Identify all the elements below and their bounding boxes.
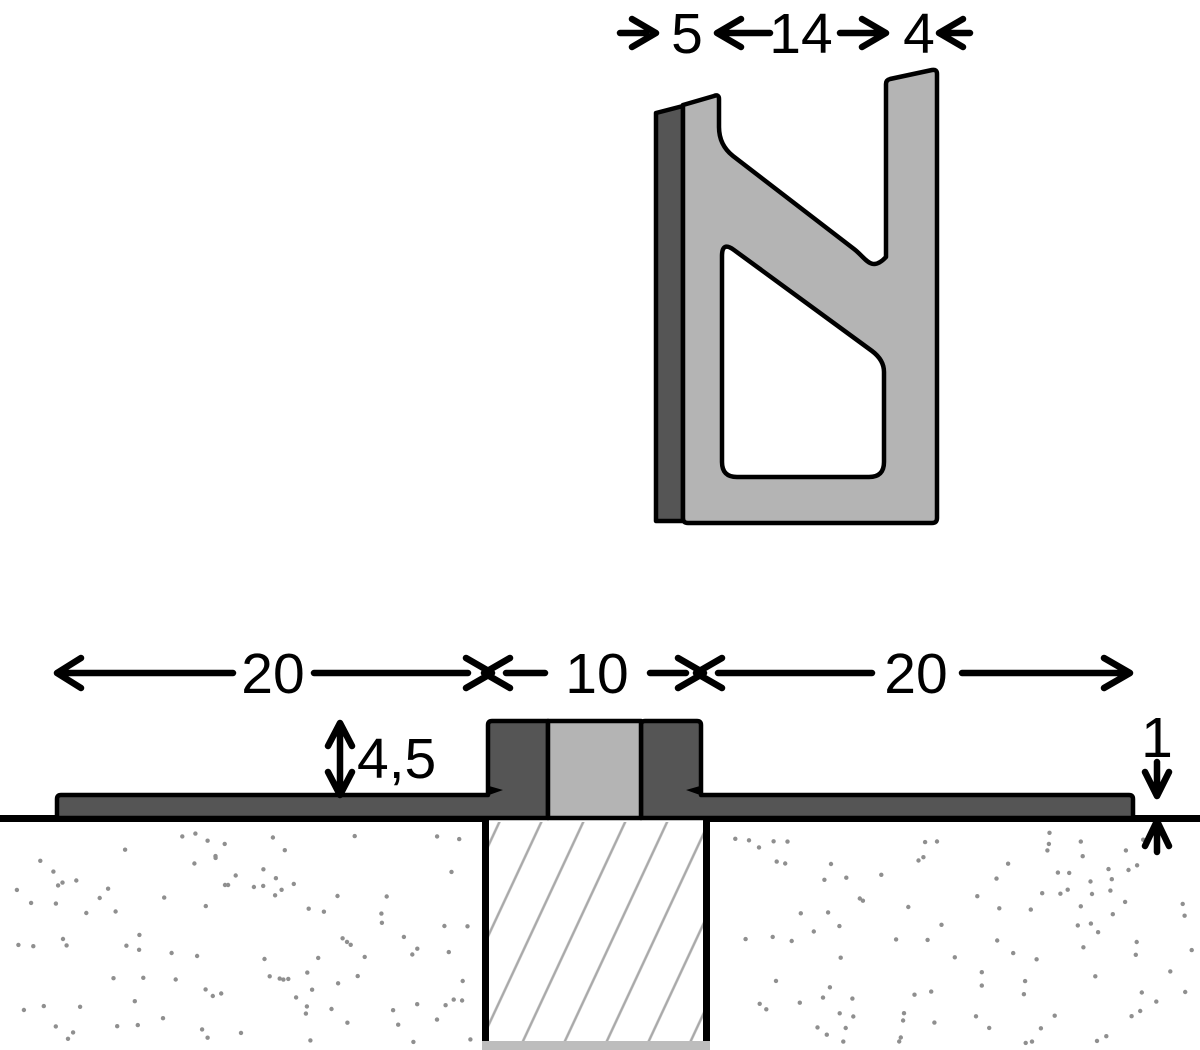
stipple-dot xyxy=(278,976,282,980)
stipple-dot xyxy=(38,859,42,863)
stipple-dot xyxy=(283,848,287,852)
dim-junction-cross-icon xyxy=(650,658,872,688)
dim-arrow-right-icon xyxy=(620,19,656,47)
stipple-dot xyxy=(1111,912,1115,916)
stipple-dot xyxy=(363,955,367,959)
stipple-dot xyxy=(137,948,141,952)
stipple-dot xyxy=(106,887,110,891)
stipple-dot xyxy=(980,970,984,974)
stipple-dot xyxy=(975,894,979,898)
stipple-dot xyxy=(141,976,145,980)
stipple-dot xyxy=(821,995,825,999)
stipple-dot xyxy=(841,1039,845,1043)
stipple-dot xyxy=(851,1014,855,1018)
top-dimension-chain: 5 14 4 xyxy=(620,2,970,66)
technical-drawing-page: 5 14 4 20 10 20 4,5 xyxy=(0,0,1200,1050)
joint-filler-bottom-strip xyxy=(482,1041,710,1050)
dim-label-joint-width: 10 xyxy=(565,642,628,706)
stipple-dot xyxy=(925,938,929,942)
stipple-dot xyxy=(1138,1009,1142,1013)
joint-filler-hatch xyxy=(489,822,703,1042)
stipple-dot xyxy=(1067,871,1071,875)
stipple-dot xyxy=(213,856,217,860)
dim-label-left-width: 5 xyxy=(671,2,703,66)
stipple-dot xyxy=(136,1023,140,1027)
stipple-dot xyxy=(356,974,360,978)
stipple-dot xyxy=(747,838,751,842)
stipple-dot xyxy=(1040,891,1044,895)
stipple-dot xyxy=(995,938,999,942)
stipple-dot xyxy=(929,989,933,993)
joint-gap-wall-right xyxy=(703,818,710,1045)
stipple-dot xyxy=(460,998,464,1002)
stipple-dot xyxy=(391,1008,395,1012)
stipple-dot xyxy=(1123,900,1127,904)
stipple-dot xyxy=(758,1002,762,1006)
stipple-dot xyxy=(137,933,141,937)
dim-arrow-left-icon xyxy=(717,19,770,47)
stipple-dot xyxy=(897,1039,901,1043)
stipple-dot xyxy=(205,839,209,843)
stipple-dot xyxy=(1154,999,1158,1003)
stipple-dot xyxy=(733,837,737,841)
stipple-dot xyxy=(1029,907,1033,911)
stipple-dot xyxy=(336,981,340,985)
profile-body xyxy=(683,70,937,523)
stipple-dot xyxy=(396,1022,400,1026)
stipple-dot xyxy=(994,876,998,880)
stipple-dot xyxy=(974,1014,978,1018)
stipple-dot xyxy=(771,935,775,939)
stipple-dot xyxy=(465,924,469,928)
stipple-dot xyxy=(1135,863,1139,867)
stipple-dot xyxy=(252,885,256,889)
stipple-dot xyxy=(980,983,984,987)
stipple-dot xyxy=(1110,877,1114,881)
dim-label-left-flange: 20 xyxy=(241,642,304,706)
stipple-dot xyxy=(916,858,920,862)
stipple-dot xyxy=(123,848,127,852)
stipple-dot xyxy=(839,956,843,960)
stipple-dot xyxy=(54,1024,58,1028)
profile-dark-insert-strip xyxy=(656,106,683,521)
stipple-dot xyxy=(1022,992,1026,996)
stipple-dot xyxy=(457,837,461,841)
stipple-dot xyxy=(1079,904,1083,908)
stipple-dot xyxy=(798,1001,802,1005)
stipple-dot xyxy=(1066,888,1070,892)
stipple-dot xyxy=(1124,848,1128,852)
stipple-dot xyxy=(837,924,841,928)
stipple-dot xyxy=(1079,839,1083,843)
stipple-dot xyxy=(402,935,406,939)
stipple-dot xyxy=(1106,867,1110,871)
stipple-dot xyxy=(262,957,266,961)
stipple-dot xyxy=(1045,848,1049,852)
stipple-dot xyxy=(234,873,238,877)
stipple-dot xyxy=(1190,948,1194,952)
stipple-dot xyxy=(345,1021,349,1025)
dim-vertical-double-arrow-icon xyxy=(328,723,352,795)
stipple-dot xyxy=(411,1040,415,1044)
stipple-dot xyxy=(219,991,223,995)
stipple-dot xyxy=(1134,953,1138,957)
stipple-dot xyxy=(203,987,207,991)
stipple-dot xyxy=(1181,902,1185,906)
stipple-dot xyxy=(29,901,33,905)
stipple-dot xyxy=(1053,1014,1057,1018)
stipple-dot xyxy=(1129,1014,1133,1018)
installed-section xyxy=(0,721,1200,1050)
dim-label-right-flange: 20 xyxy=(884,642,947,706)
stipple-dot xyxy=(468,1037,472,1041)
stipple-dot xyxy=(461,979,465,983)
stipple-dot xyxy=(1058,892,1062,896)
stipple-dot xyxy=(180,834,184,838)
stipple-dot xyxy=(442,924,446,928)
stipple-dot xyxy=(923,840,927,844)
stipple-dot xyxy=(1089,921,1093,925)
stipple-dot xyxy=(1135,940,1139,944)
stipple-dot xyxy=(443,1003,447,1007)
stipple-dot xyxy=(195,954,199,958)
profile-left-leg-and-flange xyxy=(57,721,548,818)
stipple-dot xyxy=(307,907,311,911)
stipple-dot xyxy=(822,878,826,882)
stipple-dot xyxy=(1095,1039,1099,1043)
stipple-dot xyxy=(205,1036,209,1040)
stipple-dot xyxy=(764,1007,768,1011)
stipple-dot xyxy=(1039,1026,1043,1030)
stipple-dot xyxy=(828,985,832,989)
stipple-dot xyxy=(939,923,943,927)
profile-cross-section xyxy=(656,70,937,523)
stipple-dot xyxy=(349,943,353,947)
stipple-dot xyxy=(1126,868,1130,872)
stipple-dot xyxy=(345,940,349,944)
stipple-dot xyxy=(74,878,78,882)
stipple-dot xyxy=(902,1011,906,1015)
stipple-dot xyxy=(380,921,384,925)
stipple-dot xyxy=(1168,969,1172,973)
stipple-dot xyxy=(452,997,456,1001)
stipple-dot xyxy=(1096,930,1100,934)
stipple-dot xyxy=(316,956,320,960)
stipple-dot xyxy=(78,1005,82,1009)
stipple-dot xyxy=(223,883,227,887)
thickness-dimension: 1 xyxy=(1141,706,1173,852)
stipple-dot xyxy=(274,876,278,880)
stipple-dot xyxy=(1183,990,1187,994)
stipple-dot xyxy=(812,929,816,933)
stipple-dot xyxy=(743,937,747,941)
stipple-dot xyxy=(775,859,779,863)
stipple-dot xyxy=(353,834,357,838)
stipple-dot xyxy=(61,937,65,941)
stipple-dot xyxy=(133,999,137,1003)
stipple-dot xyxy=(435,834,439,838)
stipple-dot xyxy=(894,937,898,941)
stipple-dot xyxy=(1081,854,1085,858)
stipple-dot xyxy=(42,1004,46,1008)
dim-arrow-up-icon xyxy=(1145,821,1169,852)
stipple-dot xyxy=(799,911,803,915)
stipple-dot xyxy=(1056,870,1060,874)
stipple-dot xyxy=(15,888,19,892)
stipple-dot xyxy=(785,839,789,843)
stipple-dot xyxy=(211,994,215,998)
stipple-dot xyxy=(98,896,102,900)
stipple-dot xyxy=(1047,831,1051,835)
stipple-dot xyxy=(829,862,833,866)
stipple-dot xyxy=(261,867,265,871)
stipple-dot xyxy=(410,952,414,956)
stipple-dot xyxy=(1090,892,1094,896)
stipple-dot xyxy=(54,901,58,905)
stipple-dot xyxy=(997,906,1001,910)
stipple-dot xyxy=(825,1033,829,1037)
stipple-dot xyxy=(51,869,55,873)
stipple-dot xyxy=(844,876,848,880)
stipple-dot xyxy=(261,884,265,888)
stipple-dot xyxy=(1034,957,1038,961)
stipple-dot xyxy=(815,1025,819,1029)
stipple-dot xyxy=(783,861,787,865)
stipple-dot xyxy=(771,839,775,843)
stipple-dot xyxy=(200,1027,204,1031)
stipple-dot xyxy=(286,977,290,981)
stipple-dot xyxy=(826,910,830,914)
joint-gap-wall-left xyxy=(482,818,489,1045)
stipple-dot xyxy=(22,1008,26,1012)
stipple-dot xyxy=(858,896,862,900)
stipple-dot xyxy=(1011,951,1015,955)
stipple-dot xyxy=(987,1026,991,1030)
dim-arrow-right-icon xyxy=(840,19,886,47)
stipple-dot xyxy=(308,1038,312,1042)
stipple-dot xyxy=(1081,945,1085,949)
stipple-dot xyxy=(294,995,298,999)
stipple-dot xyxy=(60,880,64,884)
stipple-dot xyxy=(1093,974,1097,978)
stipple-dot xyxy=(304,1011,308,1015)
stipple-dot xyxy=(223,842,227,846)
stipple-dot xyxy=(838,1011,842,1015)
stipple-dot xyxy=(844,1026,848,1030)
stipple-dot xyxy=(1182,914,1186,918)
stipple-dot xyxy=(281,977,285,981)
dim-junction-cross-icon xyxy=(314,658,545,688)
stipple-dot xyxy=(879,873,883,877)
stipple-dot xyxy=(901,1018,905,1022)
stipple-dot xyxy=(935,839,939,843)
stipple-dot xyxy=(84,911,88,915)
stipple-dot xyxy=(174,977,178,981)
stipple-dot xyxy=(790,939,794,943)
stipple-dot xyxy=(66,1037,70,1041)
stipple-dot xyxy=(1030,1039,1034,1043)
dim-arrow-left-icon xyxy=(57,658,233,688)
stipple-dot xyxy=(31,944,35,948)
stipple-dot xyxy=(310,988,314,992)
stipple-dot xyxy=(1104,1034,1108,1038)
profile-right-leg-and-flange xyxy=(641,721,1133,818)
dim-label-middle-width: 14 xyxy=(769,2,832,66)
stipple-dot xyxy=(162,895,166,899)
stipple-dot xyxy=(1006,862,1010,866)
stipple-dot xyxy=(322,910,326,914)
stipple-dot xyxy=(757,845,761,849)
stipple-dot xyxy=(204,904,208,908)
stipple-dot xyxy=(415,947,419,951)
height-dimension: 4,5 xyxy=(328,723,436,795)
stipple-dot xyxy=(435,1017,439,1021)
stipple-dot xyxy=(1088,879,1092,883)
stipple-dot xyxy=(113,909,117,913)
stipple-dot xyxy=(56,883,60,887)
stipple-dot xyxy=(239,1031,243,1035)
stipple-dot xyxy=(912,993,916,997)
stipple-dot xyxy=(335,894,339,898)
stipple-dot xyxy=(16,943,20,947)
stipple-dot xyxy=(1076,923,1080,927)
stipple-dot xyxy=(305,1004,309,1008)
stipple-dot xyxy=(899,1035,903,1039)
stipple-dot xyxy=(953,955,957,959)
stipple-dot xyxy=(415,1002,419,1006)
stipple-dot xyxy=(1140,990,1144,994)
joint-profile-diagram: 5 14 4 20 10 20 4,5 xyxy=(0,0,1200,1050)
stipple-dot xyxy=(161,1016,165,1020)
joint-insert-center-block xyxy=(548,721,641,818)
stipple-dot xyxy=(71,1030,75,1034)
stipple-dot xyxy=(921,855,925,859)
dim-arrow-left-icon xyxy=(939,19,970,47)
stipple-dot xyxy=(124,944,128,948)
stipple-dot xyxy=(385,894,389,898)
bottom-dimension-chain: 20 10 20 xyxy=(57,642,1130,706)
stipple-dot xyxy=(268,974,272,978)
stipple-dot xyxy=(340,936,344,940)
stipple-dot xyxy=(1108,888,1112,892)
stipple-dot xyxy=(273,893,277,897)
stipple-dot xyxy=(292,882,296,886)
stipple-dot xyxy=(1023,1041,1027,1045)
dim-label-right-width: 4 xyxy=(903,2,935,66)
stipple-dot xyxy=(449,870,453,874)
stipple-dot xyxy=(192,861,196,865)
stipple-dot xyxy=(379,911,383,915)
stipple-dot xyxy=(115,1024,119,1028)
stipple-dot xyxy=(64,943,68,947)
stipple-dot xyxy=(329,1007,333,1011)
stipple-dot xyxy=(1047,842,1051,846)
stipple-dot xyxy=(932,1020,936,1024)
stipple-dot xyxy=(279,888,283,892)
stipple-dot xyxy=(271,835,275,839)
stipple-dot xyxy=(193,831,197,835)
stipple-dot xyxy=(305,970,309,974)
stipple-dot xyxy=(447,950,451,954)
stipple-dot xyxy=(906,905,910,909)
stipple-dot xyxy=(111,976,115,980)
stipple-dot xyxy=(850,996,854,1000)
stipple-dot xyxy=(774,979,778,983)
dim-label-visible-height: 4,5 xyxy=(357,727,436,791)
dim-arrow-right-icon xyxy=(962,658,1130,688)
stipple-dot xyxy=(169,951,173,955)
stipple-dot xyxy=(1023,979,1027,983)
